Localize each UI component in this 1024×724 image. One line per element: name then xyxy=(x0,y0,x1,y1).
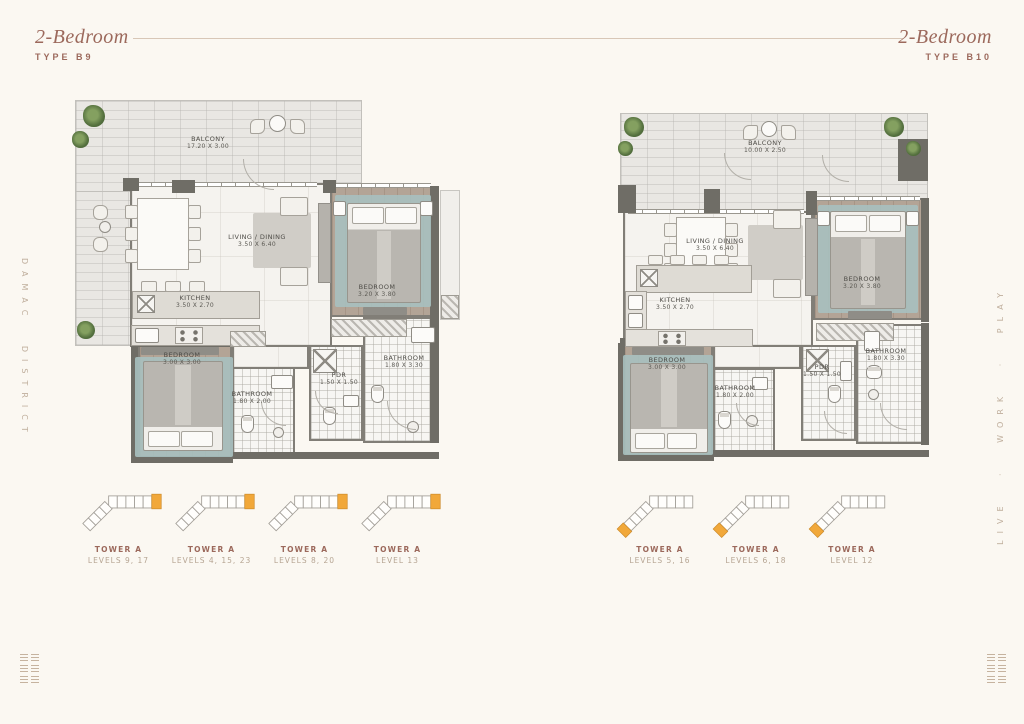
keyplan-tower-label: TOWER A xyxy=(165,545,258,554)
keyplan-graphic xyxy=(74,489,164,539)
keyplan-levels-label: LEVEL 12 xyxy=(804,556,900,565)
room-label-kitchen: KITCHEN 3.50 X 2.70 xyxy=(176,294,214,310)
toilet-icon xyxy=(241,415,254,433)
wall-segment xyxy=(704,189,720,213)
room-label-pdr: PDR 1.50 X 1.50 xyxy=(320,371,358,387)
nightstand-icon xyxy=(333,201,346,216)
room-dims: 3.50 X 6.40 xyxy=(228,241,286,249)
brochure-page: 2-Bedroom TYPE B9 2-Bedroom TYPE B10 DAM… xyxy=(0,0,1024,724)
side-text-damac-district: DAMAC DISTRICT xyxy=(20,258,29,439)
dining-table xyxy=(137,198,189,270)
plant-icon xyxy=(77,321,95,339)
wardrobe-hatch xyxy=(331,319,407,337)
plant-icon xyxy=(618,141,633,156)
chair-icon xyxy=(188,249,201,263)
balcony-chair-icon xyxy=(290,119,305,134)
balcony-table-icon xyxy=(269,115,286,132)
pillow-icon xyxy=(181,431,213,447)
room-name: PDR xyxy=(803,363,841,371)
room-label-bedroom2: BEDROOM 3.00 X 3.00 xyxy=(648,356,686,372)
room-label-living: LIVING / DINING 3.50 X 6.40 xyxy=(686,237,744,253)
room-name: BALCONY xyxy=(187,135,229,143)
wall-segment xyxy=(713,450,929,457)
keyplan-tower-label: TOWER A xyxy=(72,545,165,554)
stool-icon xyxy=(648,255,663,265)
keyplan-graphic xyxy=(353,489,443,539)
room-label-pdr: PDR 1.50 X 1.50 xyxy=(803,363,841,379)
pillow-icon xyxy=(667,433,697,449)
chair-icon xyxy=(125,227,138,241)
side-text-live-work-play: LIVE · WORK · PLAY xyxy=(996,286,1005,545)
window-strip xyxy=(816,196,920,201)
keyplan-b9-3: TOWER A LEVELS 8, 20 xyxy=(258,489,351,565)
sink-icon xyxy=(628,295,643,310)
keyplan-b10-1: TOWER A LEVELS 5, 16 xyxy=(612,489,708,565)
room-name: BALCONY xyxy=(744,139,786,147)
island-sink-icon xyxy=(640,269,658,287)
keyplan-b9-4: TOWER A LEVEL 13 xyxy=(351,489,444,565)
sink-icon xyxy=(135,328,159,343)
room-name: KITCHEN xyxy=(176,294,214,302)
armchair-icon xyxy=(280,197,308,216)
tv-unit xyxy=(318,203,331,283)
room-dims: 3.50 X 2.70 xyxy=(176,302,214,310)
ledge-hatch xyxy=(441,295,459,319)
keyplan-b10-3: TOWER A LEVEL 12 xyxy=(804,489,900,565)
bench-icon xyxy=(848,311,892,319)
room-label-bedroom1: BEDROOM 3.20 X 3.80 xyxy=(358,283,396,299)
wall-segment xyxy=(172,180,195,193)
room-name: PDR xyxy=(320,371,358,379)
room-dims: 1.80 X 2.00 xyxy=(715,392,756,400)
wall-segment xyxy=(921,323,929,445)
wall-segment xyxy=(618,185,636,213)
shower-drain-icon xyxy=(273,427,284,438)
keyplan-levels-label: LEVELS 6, 18 xyxy=(708,556,804,565)
plan-type-b10: TYPE B10 xyxy=(898,52,992,62)
chair-icon xyxy=(664,223,677,237)
room-name: BATHROOM xyxy=(715,384,756,392)
stool-icon xyxy=(141,281,157,292)
balcony-table-icon xyxy=(99,221,111,233)
pillow-icon xyxy=(385,207,417,224)
balcony-chair-icon xyxy=(93,205,108,220)
wall-segment xyxy=(323,180,336,193)
keyplan-tower-label: TOWER A xyxy=(258,545,351,554)
plant-icon xyxy=(72,131,89,148)
stool-icon xyxy=(714,255,729,265)
plant-icon xyxy=(906,141,921,156)
room-dims: 3.50 X 2.70 xyxy=(656,304,694,312)
armchair-icon xyxy=(280,267,308,286)
room-dims: 1.80 X 3.30 xyxy=(866,355,907,363)
room-label-bedroom1: BEDROOM 3.20 X 3.80 xyxy=(843,275,881,291)
wall-segment xyxy=(618,454,714,461)
kitchen-counter xyxy=(625,329,753,347)
room-label-balcony: BALCONY 10.00 X 2.50 xyxy=(744,139,786,155)
keyplan-tower-label: TOWER A xyxy=(804,545,900,554)
keyplan-graphic xyxy=(615,489,705,539)
wall-segment xyxy=(232,452,439,459)
chair-icon xyxy=(188,205,201,219)
room-name: LIVING / DINING xyxy=(686,237,744,245)
room-name: BEDROOM xyxy=(843,275,881,283)
pillow-icon xyxy=(148,431,180,447)
stove-icon xyxy=(175,327,203,344)
keyplan-levels-label: LEVELS 4, 15, 23 xyxy=(165,556,258,565)
keyplan-row-b9: TOWER A LEVELS 9, 17 TOWER A LEVELS 4, 1… xyxy=(72,489,444,565)
room-name: BATHROOM xyxy=(384,354,425,362)
header-divider xyxy=(133,38,903,39)
pillow-icon xyxy=(835,215,867,232)
shower-drain-icon xyxy=(868,389,879,400)
wall-segment xyxy=(123,178,139,191)
keyplan-graphic xyxy=(167,489,257,539)
corridor-area xyxy=(232,345,309,369)
chair-icon xyxy=(725,223,738,237)
keyplan-graphic xyxy=(711,489,801,539)
keyplan-b9-2: TOWER A LEVELS 4, 15, 23 xyxy=(165,489,258,565)
bench-icon xyxy=(363,307,407,315)
balcony-table-icon xyxy=(761,121,777,137)
balcony-chair-icon xyxy=(781,125,796,140)
chair-icon xyxy=(188,227,201,241)
plant-icon xyxy=(83,105,105,127)
nightstand-icon xyxy=(906,211,919,226)
toilet-icon xyxy=(828,385,841,403)
room-name: BEDROOM xyxy=(648,356,686,364)
sink-icon xyxy=(343,395,359,407)
title-left: 2-Bedroom TYPE B9 xyxy=(35,26,129,62)
room-label-bathroom2: BATHROOM 1.80 X 3.30 xyxy=(866,347,907,363)
closet-hatch xyxy=(230,331,266,347)
keyplan-row-b10: TOWER A LEVELS 5, 16 TOWER A LEVELS 6, 1… xyxy=(612,489,900,565)
balcony-chair-icon xyxy=(250,119,265,134)
room-label-kitchen: KITCHEN 3.50 X 2.70 xyxy=(656,296,694,312)
wardrobe-hatch xyxy=(816,323,894,341)
toilet-icon xyxy=(866,365,882,379)
keyplan-graphic xyxy=(807,489,897,539)
stool-icon xyxy=(189,281,205,292)
keyplan-levels-label: LEVELS 9, 17 xyxy=(72,556,165,565)
keyplan-levels-label: LEVELS 8, 20 xyxy=(258,556,351,565)
chair-icon xyxy=(125,249,138,263)
vanity-icon xyxy=(411,327,435,343)
keyplan-b10-2: TOWER A LEVELS 6, 18 xyxy=(708,489,804,565)
room-dims: 3.00 X 3.00 xyxy=(163,359,201,367)
plan-title-b10: 2-Bedroom xyxy=(898,26,992,49)
room-dims: 1.80 X 3.30 xyxy=(384,362,425,370)
keyplan-levels-label: LEVELS 5, 16 xyxy=(612,556,708,565)
plant-icon xyxy=(884,117,904,137)
stove-icon xyxy=(658,331,686,346)
sink-icon xyxy=(628,313,643,328)
wall-segment xyxy=(806,191,817,215)
window-strip xyxy=(137,182,317,187)
room-dims: 1.50 X 1.50 xyxy=(803,371,841,379)
plan-type-b9: TYPE B9 xyxy=(35,52,129,62)
room-dims: 3.50 X 6.40 xyxy=(686,245,744,253)
room-name: BATHROOM xyxy=(866,347,907,355)
room-label-bathroom1: BATHROOM 1.80 X 2.00 xyxy=(232,390,273,406)
room-name: BEDROOM xyxy=(358,283,396,291)
plant-icon xyxy=(624,117,644,137)
room-label-living: LIVING / DINING 3.50 X 6.40 xyxy=(228,233,286,249)
wall-segment xyxy=(133,456,233,463)
armchair-icon xyxy=(773,279,801,298)
room-name: KITCHEN xyxy=(656,296,694,304)
stool-icon xyxy=(692,255,707,265)
corner-deco-right xyxy=(987,652,1006,683)
tv-unit xyxy=(805,218,818,296)
toilet-icon xyxy=(718,411,731,429)
nightstand-icon xyxy=(420,201,433,216)
keyplan-b9-1: TOWER A LEVELS 9, 17 xyxy=(72,489,165,565)
room-label-balcony: BALCONY 17.20 X 3.00 xyxy=(187,135,229,151)
balcony-chair-icon xyxy=(93,237,108,252)
room-label-bathroom2: BATHROOM 1.80 X 3.30 xyxy=(384,354,425,370)
room-dims: 3.00 X 3.00 xyxy=(648,364,686,372)
room-name: BEDROOM xyxy=(163,351,201,359)
floorplan-b10: BALCONY 10.00 X 2.50 LIVING / DINING 3.5… xyxy=(618,105,932,463)
stool-icon xyxy=(165,281,181,292)
vanity-icon xyxy=(271,375,293,389)
room-dims: 3.20 X 3.80 xyxy=(358,291,396,299)
living-rug xyxy=(748,225,803,280)
island-sink-icon xyxy=(137,295,155,313)
room-dims: 1.80 X 2.00 xyxy=(232,398,273,406)
corner-deco-left xyxy=(20,652,39,683)
room-dims: 1.50 X 1.50 xyxy=(320,379,358,387)
washer-icon xyxy=(313,349,337,373)
pillow-icon xyxy=(352,207,384,224)
balcony-chair-icon xyxy=(743,125,758,140)
toilet-icon xyxy=(371,385,384,403)
keyplan-levels-label: LEVEL 13 xyxy=(351,556,444,565)
floorplan-b9: BALCONY 17.20 X 3.00 LIVING / DINING 3.5… xyxy=(75,95,467,473)
keyplan-tower-label: TOWER A xyxy=(708,545,804,554)
room-dims: 10.00 X 2.50 xyxy=(744,147,786,155)
keyplan-tower-label: TOWER A xyxy=(612,545,708,554)
room-name: LIVING / DINING xyxy=(228,233,286,241)
keyplan-graphic xyxy=(260,489,350,539)
room-dims: 17.20 X 3.00 xyxy=(187,143,229,151)
nightstand-icon xyxy=(817,211,830,226)
dresser-icon xyxy=(632,347,704,355)
wall-segment xyxy=(921,198,929,322)
title-right: 2-Bedroom TYPE B10 xyxy=(898,26,992,62)
keyplan-tower-label: TOWER A xyxy=(351,545,444,554)
room-name: BATHROOM xyxy=(232,390,273,398)
chair-icon xyxy=(125,205,138,219)
room-label-bathroom1: BATHROOM 1.80 X 2.00 xyxy=(715,384,756,400)
pillow-icon xyxy=(635,433,665,449)
room-dims: 3.20 X 3.80 xyxy=(843,283,881,291)
room-label-bedroom2: BEDROOM 3.00 X 3.00 xyxy=(163,351,201,367)
plan-title-b9: 2-Bedroom xyxy=(35,26,129,49)
window-strip xyxy=(333,183,431,188)
corridor-area xyxy=(713,345,801,369)
sink-icon xyxy=(840,361,852,381)
pillow-icon xyxy=(869,215,901,232)
armchair-icon xyxy=(773,210,801,229)
stool-icon xyxy=(670,255,685,265)
